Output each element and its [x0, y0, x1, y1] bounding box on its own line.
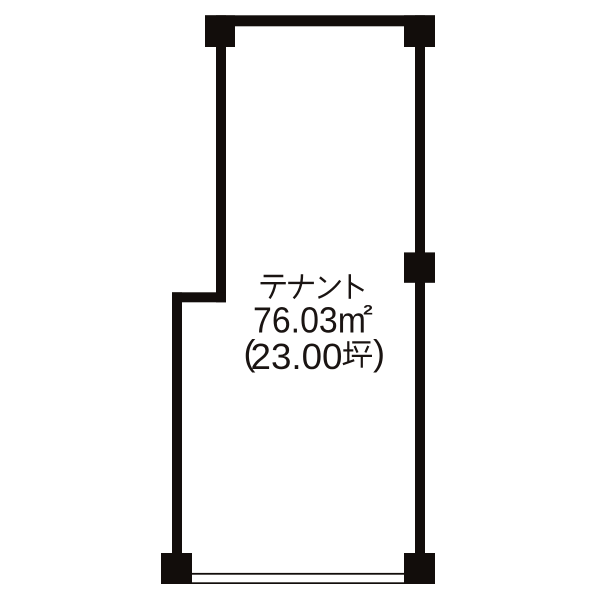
svg-text:): ) [373, 332, 385, 373]
svg-text:76.03m: 76.03m [253, 299, 366, 340]
svg-text:23.00: 23.00 [251, 336, 343, 377]
svg-text:2: 2 [363, 303, 373, 318]
